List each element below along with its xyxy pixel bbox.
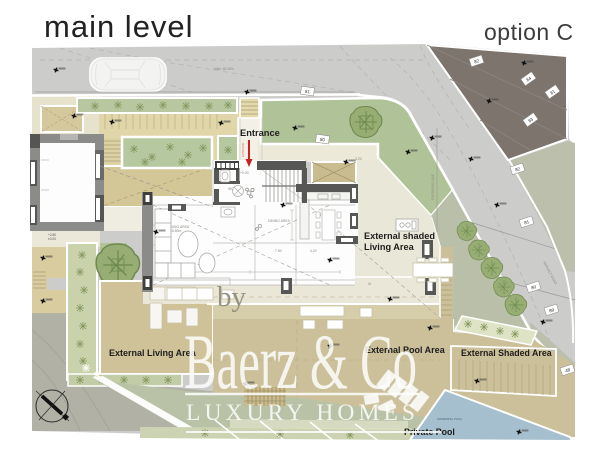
svg-text:Baerz & Co: Baerz & Co <box>184 318 417 405</box>
svg-text:±0.00: ±0.00 <box>48 237 56 241</box>
svg-text:SWIMMING POOL: SWIMMING POOL <box>437 417 462 421</box>
svg-text:v45m 18.30%: v45m 18.30% <box>213 67 234 71</box>
svg-text:option C: option C <box>484 19 574 45</box>
svg-text:4.20: 4.20 <box>310 249 317 253</box>
svg-text:45.80m: 45.80m <box>170 229 181 233</box>
svg-text:+0.00: +0.00 <box>240 171 249 175</box>
svg-text:by: by <box>217 281 247 313</box>
svg-text:DINING AREA: DINING AREA <box>268 219 291 223</box>
svg-text:3.20: 3.20 <box>355 157 362 161</box>
svg-text:main level: main level <box>44 9 194 44</box>
svg-text:7.80: 7.80 <box>275 249 282 253</box>
svg-text:OVERHEAD LINE: OVERHEAD LINE <box>431 174 435 200</box>
svg-text:Living Area: Living Area <box>364 242 415 252</box>
svg-text:ENTRANCE: ENTRANCE <box>241 142 245 157</box>
svg-text:External shaded: External shaded <box>364 231 435 241</box>
svg-text:Entrance: Entrance <box>240 128 280 138</box>
svg-text:External Shaded Area: External Shaded Area <box>461 348 552 358</box>
